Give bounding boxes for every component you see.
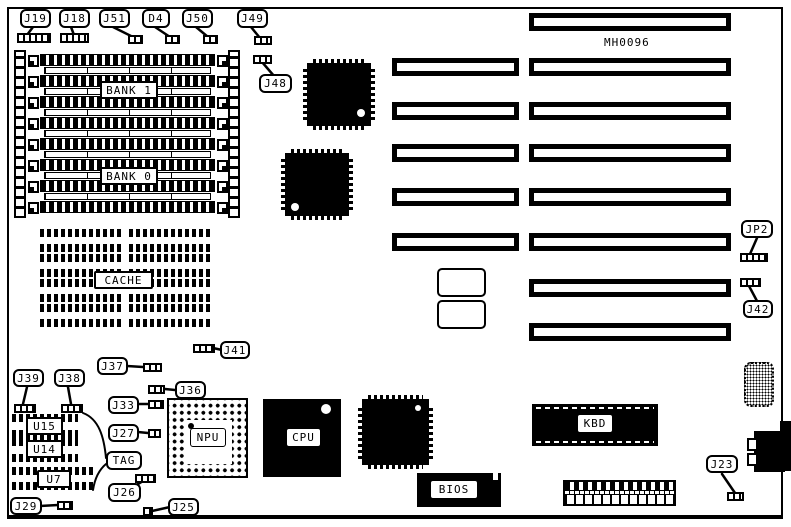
cache-chip <box>129 229 212 252</box>
pin1-dot <box>357 109 365 117</box>
dip-pin-row <box>536 407 654 409</box>
simm-latch <box>28 160 39 172</box>
jumper-j18 <box>60 33 89 43</box>
callout-text: J27 <box>112 428 135 439</box>
callout-label-j50: J50 <box>182 9 213 28</box>
bank1-label: BANK 1 <box>100 81 158 99</box>
simm-latch <box>28 202 39 214</box>
keyboard-din-connector-edge <box>780 421 791 471</box>
simm-module <box>40 201 215 213</box>
voltage-regulator-component <box>744 362 774 407</box>
cpu-label: CPU <box>286 428 321 447</box>
u14-label: U14 <box>26 440 63 458</box>
callout-label-jp2: JP2 <box>741 220 773 238</box>
u7-label: U7 <box>37 470 71 488</box>
jumper-j48 <box>253 55 272 64</box>
u15-label: U15 <box>26 417 63 435</box>
isa-slot <box>529 144 731 162</box>
callout-label-tag: TAG <box>106 451 142 470</box>
connector-tab <box>747 438 758 451</box>
power-connector-wells <box>565 495 674 504</box>
callout-label-j19: J19 <box>20 9 51 28</box>
callout-label-j26: J26 <box>108 483 141 502</box>
callout-label-j33: J33 <box>108 396 139 414</box>
simm-socket <box>44 130 211 137</box>
jumper-j41 <box>193 344 215 353</box>
qfp-pins <box>371 69 375 120</box>
simm-socket <box>44 67 211 74</box>
connector-tab <box>747 453 758 466</box>
cache-chip <box>129 304 212 327</box>
pin1-dot <box>321 404 331 414</box>
callout-text: J51 <box>103 13 126 24</box>
simm-module <box>40 54 215 66</box>
motherboard-diagram: J19 J18 J51 D4 J50 J49 J48 BANK 1 BANK 0 <box>0 0 791 527</box>
simm-latch <box>28 55 39 67</box>
board-part-number: MH0096 <box>604 37 650 48</box>
dip-pin-row <box>536 441 654 443</box>
isa-slot-16bit-extension <box>392 102 519 120</box>
bios-text: BIOS <box>439 484 470 495</box>
simm-latch <box>217 97 228 109</box>
jumper-j29 <box>57 501 73 510</box>
jumper-j38 <box>61 404 83 413</box>
pin1-dot <box>291 203 299 211</box>
qfp-chip-upper <box>307 63 371 126</box>
simm-latch <box>217 181 228 193</box>
callout-label-j36: J36 <box>175 381 206 399</box>
simm-latch <box>28 97 39 109</box>
callout-label-j51: J51 <box>99 9 130 28</box>
memory-rail-left <box>14 50 26 218</box>
callout-text: D4 <box>148 13 163 24</box>
isa-slot <box>529 58 731 76</box>
isa-slot <box>529 13 731 31</box>
callout-text: J23 <box>711 459 734 470</box>
callout-label-j38: J38 <box>54 369 85 387</box>
callout-label-j48: J48 <box>259 74 292 93</box>
callout-text: J18 <box>63 13 86 24</box>
bank0-text: BANK 0 <box>106 171 152 182</box>
qfp-pins <box>429 405 433 459</box>
cache-chip <box>40 229 123 252</box>
isa-slot <box>529 279 731 297</box>
callout-label-j39: J39 <box>13 369 44 387</box>
u7-text: U7 <box>46 474 61 485</box>
jumper-jp2 <box>740 253 768 262</box>
callout-text: J19 <box>24 13 47 24</box>
callout-text: J37 <box>101 361 124 372</box>
isa-slot-16bit-extension <box>392 144 519 162</box>
callout-label-j25: J25 <box>168 498 199 516</box>
bank0-label: BANK 0 <box>100 167 158 185</box>
qfp-pins <box>291 216 343 220</box>
simm-module <box>40 117 215 129</box>
callout-text: J26 <box>113 487 136 498</box>
jumper-j19 <box>17 33 51 43</box>
qfp-pins <box>291 149 343 153</box>
simm-latch <box>28 181 39 193</box>
simm-latch <box>217 55 228 67</box>
qfp-pins <box>313 59 365 63</box>
jumper-j37 <box>143 363 162 372</box>
npu-label: NPU <box>190 428 226 447</box>
kbd-label: KBD <box>577 414 613 433</box>
callout-text: J29 <box>15 501 38 512</box>
callout-label-j18: J18 <box>59 9 90 28</box>
jumper-j36 <box>148 385 165 394</box>
simm-latch <box>217 202 228 214</box>
simm-latch <box>28 139 39 151</box>
jumper-j49 <box>254 36 272 45</box>
jumper-j42 <box>740 278 761 287</box>
qfp-pins <box>313 126 365 130</box>
qfp-pins <box>358 405 362 459</box>
simm-latch <box>217 76 228 88</box>
simm-module <box>40 138 215 150</box>
simm-socket <box>44 193 211 200</box>
callout-label-j23: J23 <box>706 455 738 473</box>
pin1-dot <box>415 405 421 411</box>
cache-chip <box>40 304 123 327</box>
jumper-j23 <box>727 492 744 501</box>
callout-text: TAG <box>113 455 136 466</box>
simm-latch <box>217 139 228 151</box>
jumper-j39 <box>14 404 36 413</box>
bank1-text: BANK 1 <box>106 85 152 96</box>
jumper-j27 <box>148 429 161 438</box>
cache-label: CACHE <box>94 271 153 289</box>
qfp-chip-lower <box>285 153 349 216</box>
memory-rail-right <box>228 50 240 218</box>
isa-slot <box>529 102 731 120</box>
callout-label-j27: J27 <box>108 424 139 442</box>
isa-slot-16bit-extension <box>392 58 519 76</box>
callout-label-j29: J29 <box>10 497 42 515</box>
simm-latch <box>217 160 228 172</box>
callout-text: J48 <box>264 78 287 89</box>
callout-text: J33 <box>112 400 135 411</box>
callout-text: JP2 <box>746 224 769 235</box>
qfp-pins <box>368 395 423 399</box>
jumper-d4 <box>165 35 180 44</box>
qfp-chip-chipset <box>362 399 429 465</box>
qfp-pins <box>349 159 353 210</box>
callout-text: J42 <box>747 304 770 315</box>
callout-text: J36 <box>179 385 202 396</box>
power-connector <box>563 480 676 506</box>
callout-text: J49 <box>241 13 264 24</box>
simm-latch <box>217 118 228 130</box>
simm-socket <box>44 109 211 116</box>
jumper-j26 <box>135 474 156 483</box>
qfp-pins <box>281 159 285 210</box>
jumper-j51 <box>128 35 143 44</box>
qfp-pins <box>303 69 307 120</box>
simm-socket <box>44 151 211 158</box>
callout-text: J39 <box>17 373 40 384</box>
kbd-text: KBD <box>584 418 607 429</box>
empty-socket <box>437 300 486 329</box>
callout-label-j49: J49 <box>237 9 268 28</box>
bios-label: BIOS <box>430 480 478 499</box>
callout-label-j42: J42 <box>743 300 773 318</box>
u14-text: U14 <box>33 444 56 455</box>
npu-text: NPU <box>197 432 220 443</box>
jumper-j25 <box>143 507 153 516</box>
simm-latch <box>28 118 39 130</box>
isa-slot-16bit-extension <box>392 188 519 206</box>
isa-slot <box>529 188 731 206</box>
callout-text: J41 <box>224 345 247 356</box>
bios-notch <box>493 473 498 480</box>
cpu-text: CPU <box>292 432 315 443</box>
callout-text: J25 <box>172 502 195 513</box>
isa-slot <box>529 233 731 251</box>
callout-label-d4: D4 <box>142 9 170 28</box>
isa-slot-16bit-extension <box>392 233 519 251</box>
jumper-j50 <box>203 35 218 44</box>
cache-text: CACHE <box>104 275 142 286</box>
u15-text: U15 <box>33 421 56 432</box>
callout-label-j37: J37 <box>97 357 128 375</box>
qfp-pins <box>368 465 423 469</box>
power-connector-pins <box>565 482 674 491</box>
jumper-j33 <box>148 400 164 409</box>
isa-slot <box>529 323 731 341</box>
callout-text: J50 <box>186 13 209 24</box>
callout-text: J38 <box>58 373 81 384</box>
empty-socket <box>437 268 486 297</box>
callout-label-j41: J41 <box>220 341 250 359</box>
simm-latch <box>28 76 39 88</box>
